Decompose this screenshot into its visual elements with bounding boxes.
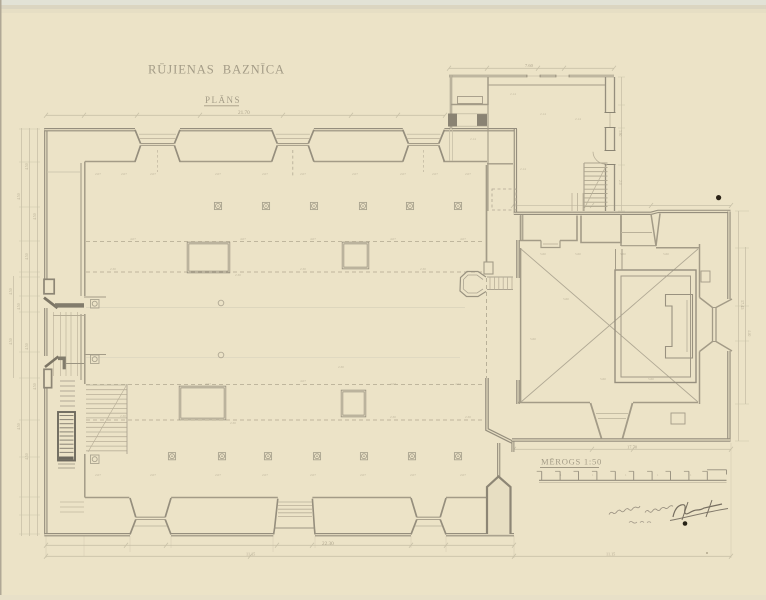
svg-text:4.50: 4.50 [33,213,37,220]
svg-text:2.07: 2.07 [95,172,101,176]
svg-text:2.30: 2.30 [420,267,426,271]
svg-text:4.07: 4.07 [310,237,316,241]
svg-text:4.50: 4.50 [25,453,29,460]
svg-text:5.60: 5.60 [563,297,569,301]
svg-text:2.30: 2.30 [235,273,241,277]
svg-text:5.60: 5.60 [540,252,546,256]
svg-text:4.07: 4.07 [455,382,461,386]
svg-text:2.14: 2.14 [520,167,526,171]
svg-text:2.07: 2.07 [95,473,101,477]
svg-text:2.07: 2.07 [215,473,221,477]
svg-text:7.60: 7.60 [525,63,534,68]
svg-text:2.30: 2.30 [465,415,471,419]
svg-text:MĒROGS 1:50: MĒROGS 1:50 [541,457,602,467]
svg-text:2.30: 2.30 [230,421,236,425]
svg-text:2.07: 2.07 [432,172,438,176]
svg-text:11.15: 11.15 [606,552,615,557]
svg-text:2.30: 2.30 [300,267,306,271]
svg-text:4.50: 4.50 [25,343,29,350]
svg-text:4.50: 4.50 [25,163,29,170]
svg-text:2.07: 2.07 [310,473,316,477]
svg-text:17.45: 17.45 [740,300,745,309]
svg-text:2.07: 2.07 [150,172,156,176]
svg-text:2.07: 2.07 [262,473,268,477]
svg-text:2.07: 2.07 [352,172,358,176]
svg-text:2.30: 2.30 [120,414,126,418]
svg-text:2.14: 2.14 [575,117,581,121]
svg-text:2.0: 2.0 [618,180,622,185]
svg-text:5.60: 5.60 [620,252,626,256]
svg-text:2.07: 2.07 [410,473,416,477]
svg-text:4.07: 4.07 [130,237,136,241]
svg-text:4.07: 4.07 [390,382,396,386]
svg-text:4.07: 4.07 [390,237,396,241]
svg-text:2.07: 2.07 [300,172,306,176]
svg-text:5.60: 5.60 [530,337,536,341]
svg-text:4.07: 4.07 [460,237,466,241]
svg-text:2.07: 2.07 [460,473,466,477]
svg-text:2.14: 2.14 [470,137,476,141]
svg-text:4.50: 4.50 [17,423,21,430]
svg-text:4.40: 4.40 [747,330,751,336]
svg-text:4.50: 4.50 [17,303,21,310]
svg-text:2.07: 2.07 [262,172,268,176]
svg-text:5.60: 5.60 [575,252,581,256]
svg-text:21.70: 21.70 [238,110,250,116]
svg-text:5.60: 5.60 [600,377,606,381]
svg-text:11.15: 11.15 [246,552,255,557]
svg-text:4.50: 4.50 [9,288,13,295]
svg-text:2.07: 2.07 [360,473,366,477]
svg-text:5.60: 5.60 [648,377,654,381]
svg-text:2.07: 2.07 [121,172,127,176]
svg-text:2.07: 2.07 [150,473,156,477]
svg-text:4.50: 4.50 [25,253,29,260]
svg-text:PLĀNS: PLĀNS [205,95,241,105]
svg-text:2.07: 2.07 [215,172,221,176]
svg-text:2.30: 2.30 [110,267,116,271]
svg-text:3.60: 3.60 [618,130,622,136]
svg-text:4.07: 4.07 [205,382,211,386]
svg-text:5.60: 5.60 [663,252,669,256]
svg-text:17.70: 17.70 [627,445,638,450]
svg-text:2.14: 2.14 [540,112,546,116]
svg-text:4.50: 4.50 [9,338,13,345]
svg-text:4.07: 4.07 [240,237,246,241]
svg-text:22.30: 22.30 [322,541,334,547]
svg-text:4.50: 4.50 [17,193,21,200]
svg-text:2.30: 2.30 [338,365,344,369]
svg-text:2.30: 2.30 [390,415,396,419]
svg-text:4.07: 4.07 [300,379,306,383]
svg-text:RŪJIENAS BAZNĪCA: RŪJIENAS BAZNĪCA [148,63,285,77]
svg-text:2.14: 2.14 [510,92,516,96]
svg-text:2.07: 2.07 [465,172,471,176]
svg-text:4.50: 4.50 [33,383,37,390]
svg-text:2.07: 2.07 [400,172,406,176]
